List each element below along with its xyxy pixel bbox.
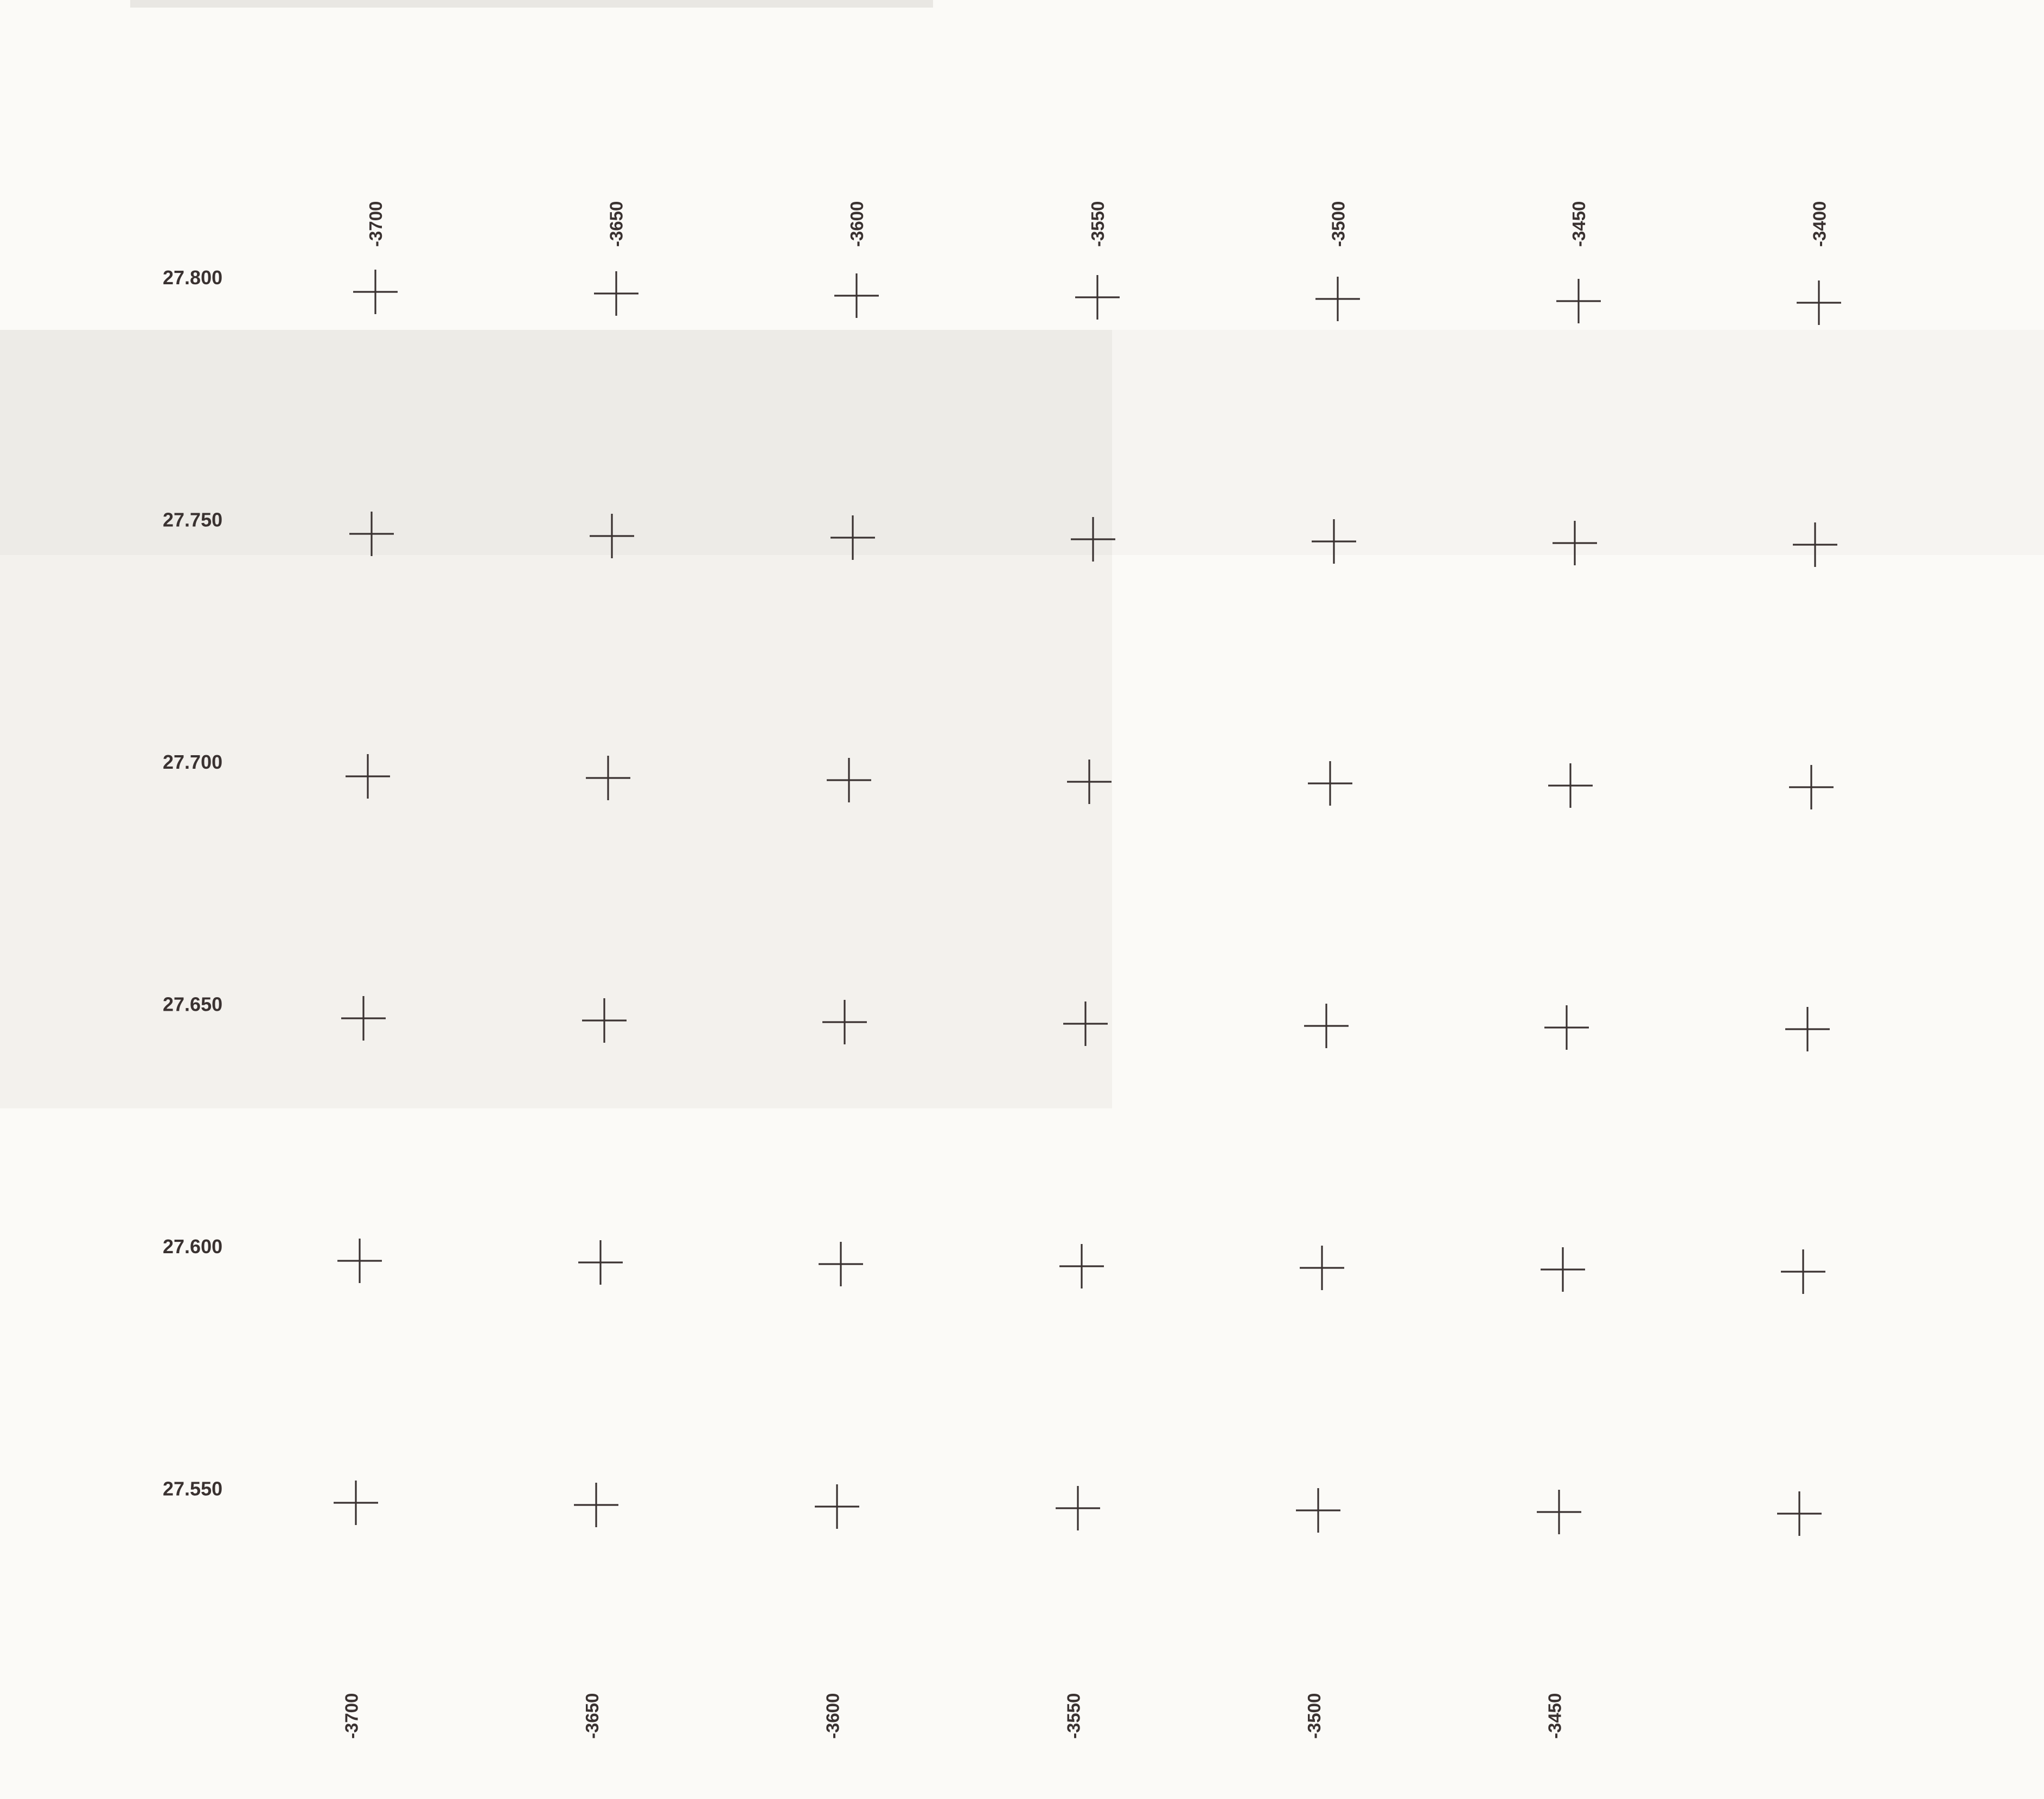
svg-text:-3400: -3400 xyxy=(1810,201,1830,247)
svg-text:-3600: -3600 xyxy=(823,1693,843,1739)
svg-text:-3550: -3550 xyxy=(1088,201,1108,247)
svg-text:27.800: 27.800 xyxy=(163,266,222,289)
svg-text:-3500: -3500 xyxy=(1304,1693,1324,1739)
svg-text:-3500: -3500 xyxy=(1328,201,1348,247)
svg-text:27.600: 27.600 xyxy=(163,1235,222,1258)
svg-text:-3550: -3550 xyxy=(1063,1693,1083,1739)
svg-text:-3650: -3650 xyxy=(582,1693,602,1739)
svg-text:-3700: -3700 xyxy=(342,1693,362,1739)
svg-text:27.700: 27.700 xyxy=(163,751,222,773)
svg-text:27.650: 27.650 xyxy=(163,993,222,1015)
svg-text:-3450: -3450 xyxy=(1569,201,1589,247)
svg-text:-3700: -3700 xyxy=(366,201,386,247)
svg-text:27.550: 27.550 xyxy=(163,1477,222,1500)
svg-text:-3600: -3600 xyxy=(847,201,867,247)
svg-text:-3650: -3650 xyxy=(606,201,627,247)
svg-text:27.750: 27.750 xyxy=(163,508,222,531)
svg-text:-3450: -3450 xyxy=(1545,1693,1565,1739)
